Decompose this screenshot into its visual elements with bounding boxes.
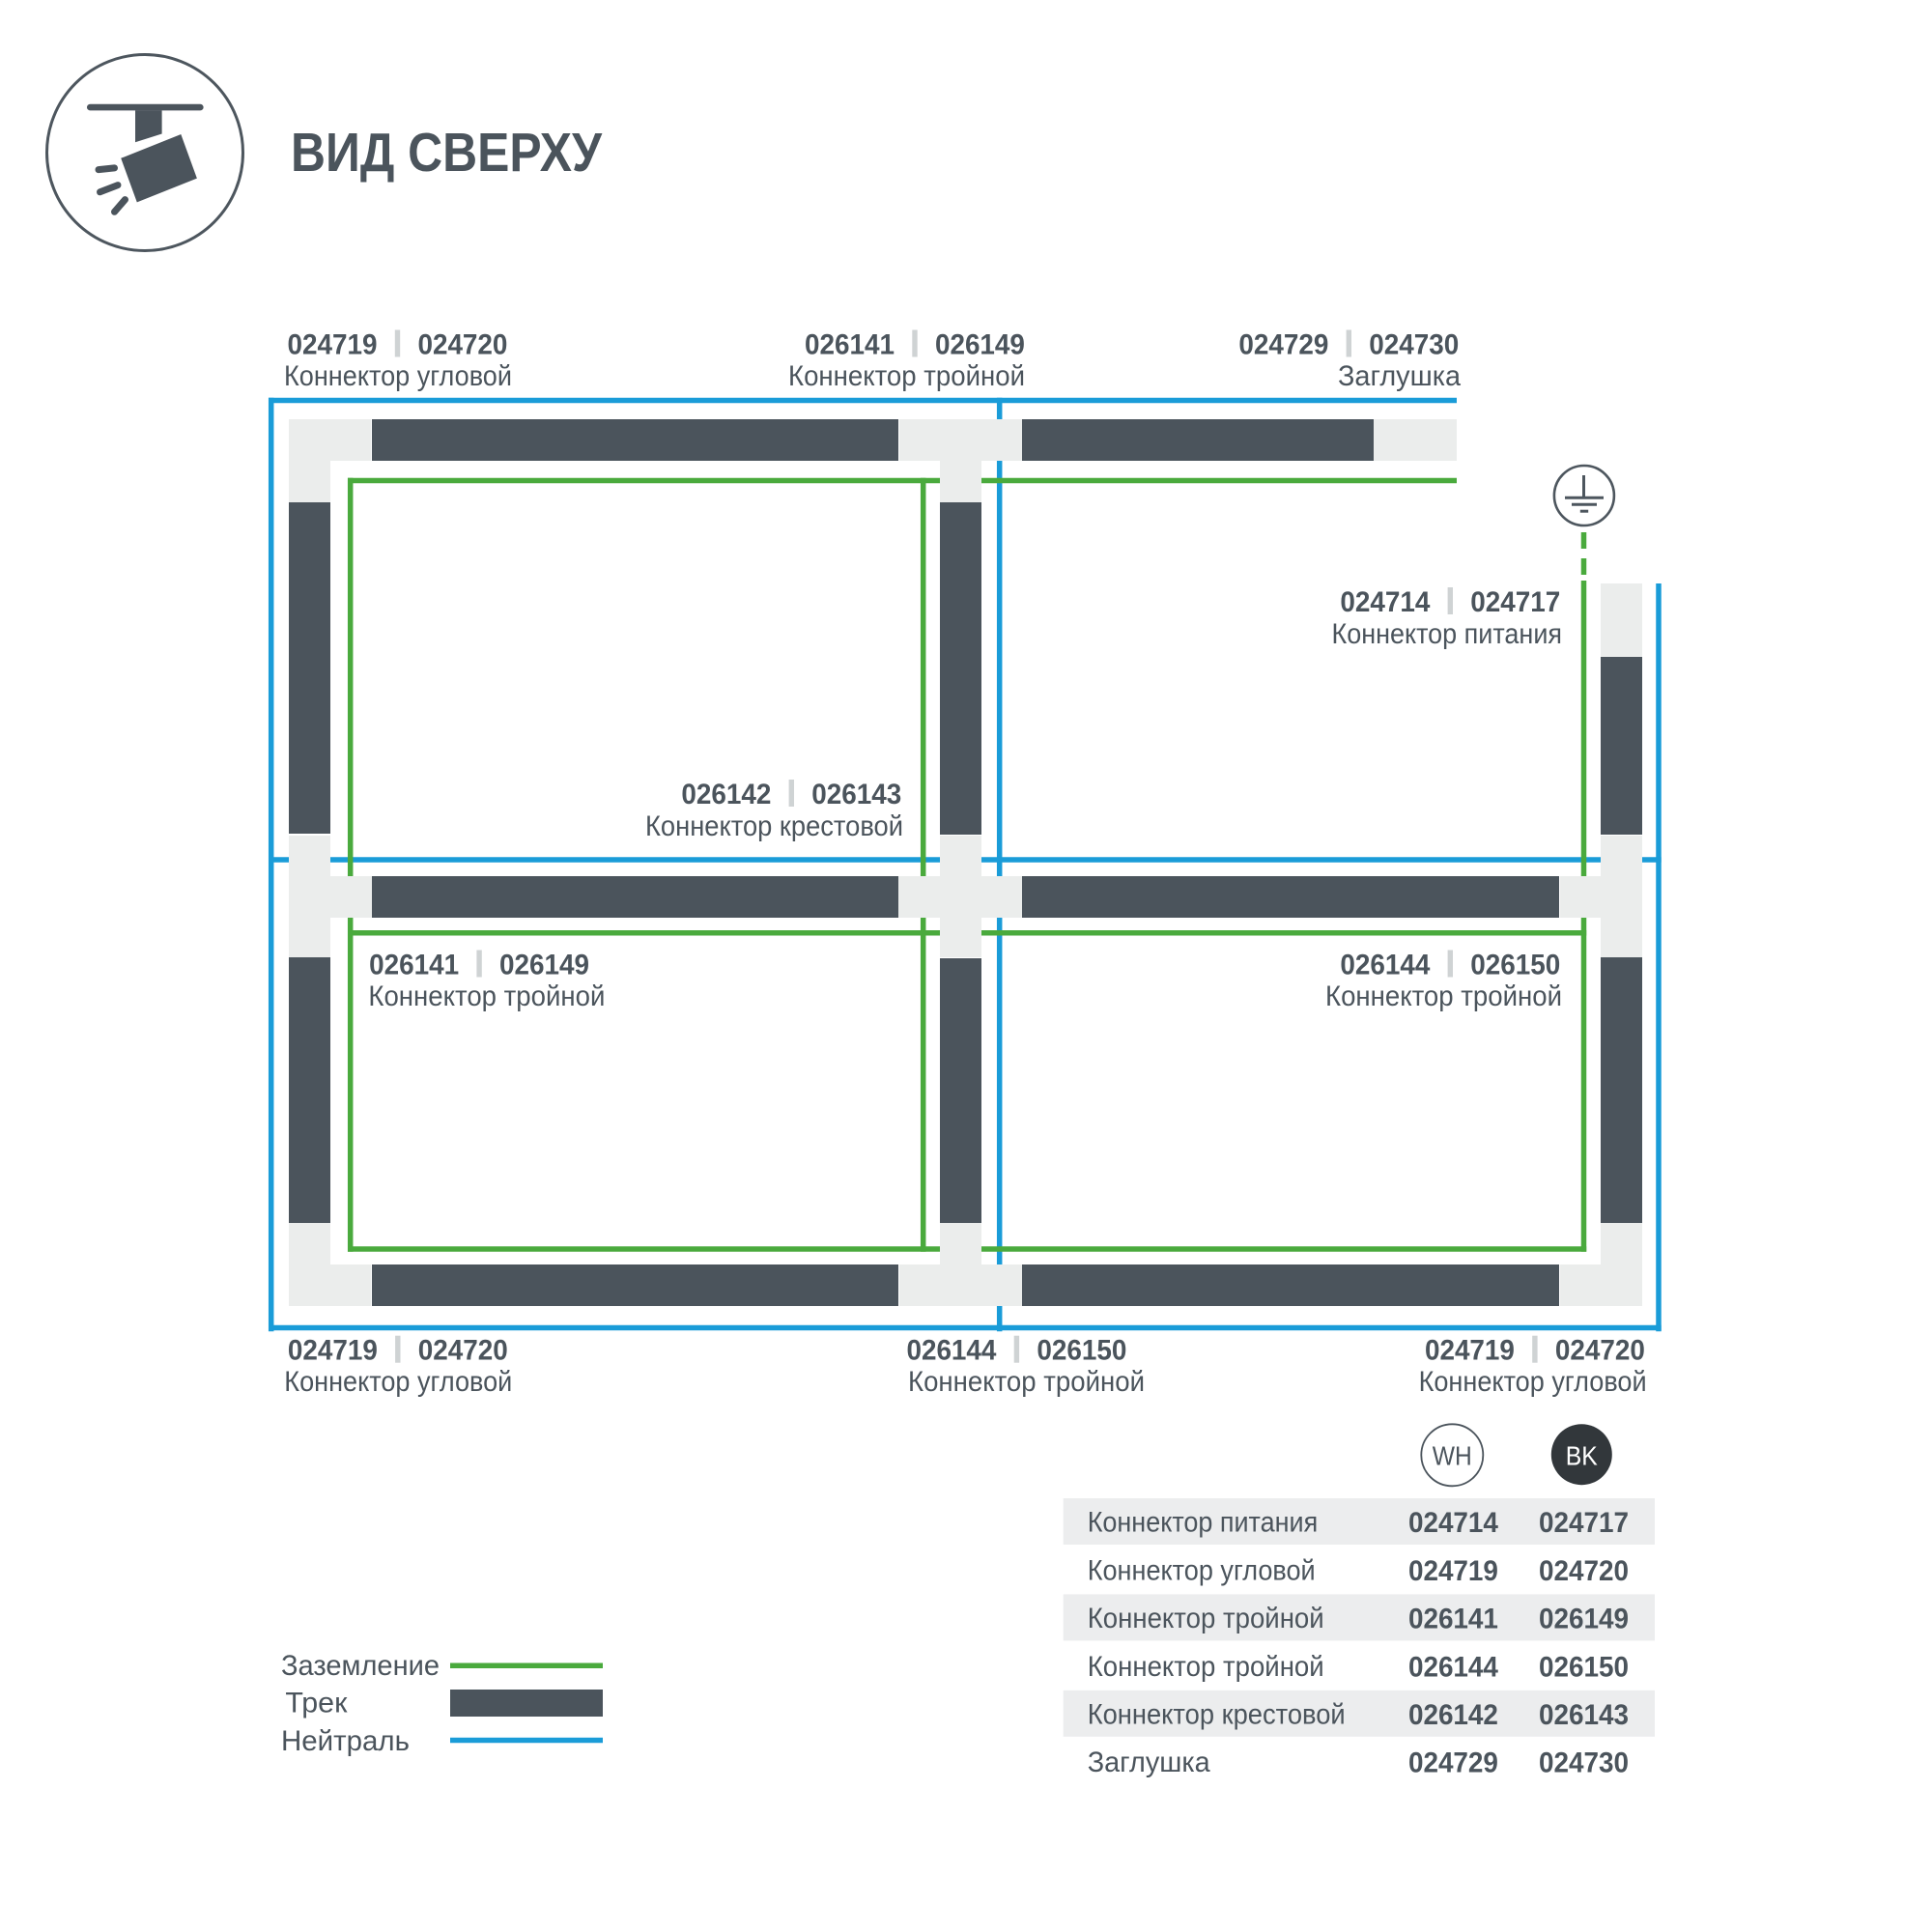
- svg-text:024720: 024720: [418, 1335, 508, 1367]
- svg-text:024729: 024729: [1238, 329, 1328, 361]
- svg-text:024719: 024719: [288, 329, 378, 361]
- svg-text:Коннектор угловой: Коннектор угловой: [1088, 1554, 1316, 1586]
- svg-text:Коннектор угловой: Коннектор угловой: [284, 1366, 512, 1398]
- svg-text:026144: 026144: [1408, 1651, 1498, 1683]
- svg-text:Заглушка: Заглушка: [1338, 360, 1461, 392]
- svg-text:Коннектор тройной: Коннектор тройной: [1088, 1651, 1324, 1683]
- svg-text:026141: 026141: [1408, 1604, 1498, 1635]
- svg-text:Коннектор угловой: Коннектор угловой: [1419, 1366, 1647, 1398]
- svg-text:Нейтраль: Нейтраль: [281, 1725, 410, 1757]
- svg-text:Коннектор тройной: Коннектор тройной: [1325, 980, 1562, 1012]
- svg-text:024729: 024729: [1408, 1747, 1498, 1779]
- svg-text:024717: 024717: [1470, 586, 1560, 618]
- svg-text:026149: 026149: [1539, 1604, 1629, 1635]
- svg-text:WH: WH: [1433, 1441, 1472, 1471]
- svg-text:Коннектор крестовой: Коннектор крестовой: [645, 810, 903, 842]
- svg-text:024719: 024719: [288, 1335, 378, 1367]
- svg-text:Заглушка: Заглушка: [1088, 1747, 1210, 1778]
- svg-text:026142: 026142: [1408, 1699, 1498, 1731]
- svg-text:026149: 026149: [935, 329, 1025, 361]
- svg-text:024717: 024717: [1539, 1507, 1629, 1539]
- svg-text:026142: 026142: [681, 779, 771, 810]
- svg-text:ВИД СВЕРХУ: ВИД СВЕРХУ: [291, 122, 602, 184]
- svg-text:026149: 026149: [499, 950, 589, 981]
- svg-text:Коннектор тройной: Коннектор тройной: [1088, 1603, 1324, 1634]
- svg-text:026144: 026144: [1340, 950, 1430, 981]
- svg-text:Коннектор питания: Коннектор питания: [1332, 618, 1563, 650]
- svg-text:Коннектор тройной: Коннектор тройной: [368, 980, 605, 1012]
- svg-text:Коннектор тройной: Коннектор тройной: [908, 1366, 1145, 1398]
- svg-text:024720: 024720: [1555, 1335, 1645, 1367]
- svg-text:024720: 024720: [417, 329, 507, 361]
- svg-text:026143: 026143: [1539, 1699, 1629, 1731]
- svg-text:026141: 026141: [805, 329, 895, 361]
- svg-text:024714: 024714: [1408, 1507, 1498, 1539]
- svg-text:Коннектор тройной: Коннектор тройной: [788, 360, 1025, 392]
- svg-text:024714: 024714: [1340, 586, 1430, 618]
- svg-text:024730: 024730: [1539, 1747, 1629, 1779]
- svg-text:024719: 024719: [1408, 1555, 1498, 1587]
- svg-text:Трек: Трек: [285, 1688, 348, 1719]
- svg-text:Заземление: Заземление: [281, 1650, 440, 1682]
- svg-text:026150: 026150: [1539, 1651, 1629, 1683]
- svg-text:024719: 024719: [1425, 1335, 1515, 1367]
- svg-text:024730: 024730: [1369, 329, 1459, 361]
- svg-text:Коннектор крестовой: Коннектор крестовой: [1088, 1699, 1346, 1731]
- svg-text:Коннектор угловой: Коннектор угловой: [284, 360, 512, 392]
- svg-text:026144: 026144: [906, 1335, 996, 1367]
- svg-text:024720: 024720: [1539, 1555, 1629, 1587]
- svg-text:026143: 026143: [811, 779, 901, 810]
- svg-text:026150: 026150: [1037, 1335, 1126, 1367]
- svg-text:026141: 026141: [369, 950, 459, 981]
- svg-text:Коннектор питания: Коннектор питания: [1088, 1507, 1319, 1539]
- svg-text:026150: 026150: [1470, 950, 1560, 981]
- svg-text:BK: BK: [1566, 1441, 1598, 1471]
